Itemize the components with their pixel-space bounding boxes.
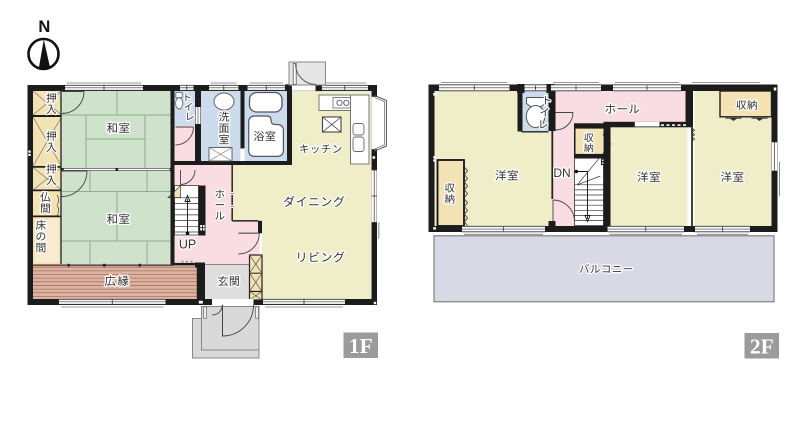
svg-text:N: N: [38, 18, 50, 36]
svg-text:UP: UP: [179, 238, 196, 252]
svg-text:DN: DN: [553, 166, 570, 180]
svg-text:1F: 1F: [349, 334, 373, 358]
svg-text:2F: 2F: [750, 335, 774, 359]
